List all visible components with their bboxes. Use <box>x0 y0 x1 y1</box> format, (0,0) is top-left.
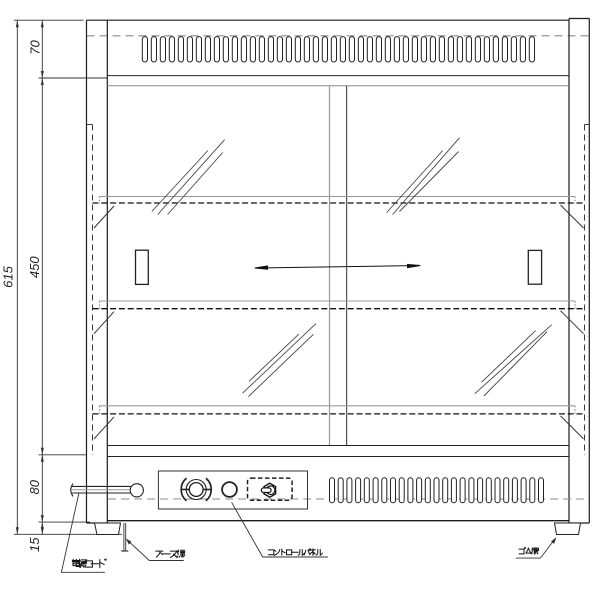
svg-text:80: 80 <box>27 479 42 494</box>
svg-text:615: 615 <box>1 265 16 287</box>
svg-text:70: 70 <box>28 40 43 55</box>
svg-text:15: 15 <box>27 537 42 552</box>
svg-text:450: 450 <box>27 256 42 278</box>
